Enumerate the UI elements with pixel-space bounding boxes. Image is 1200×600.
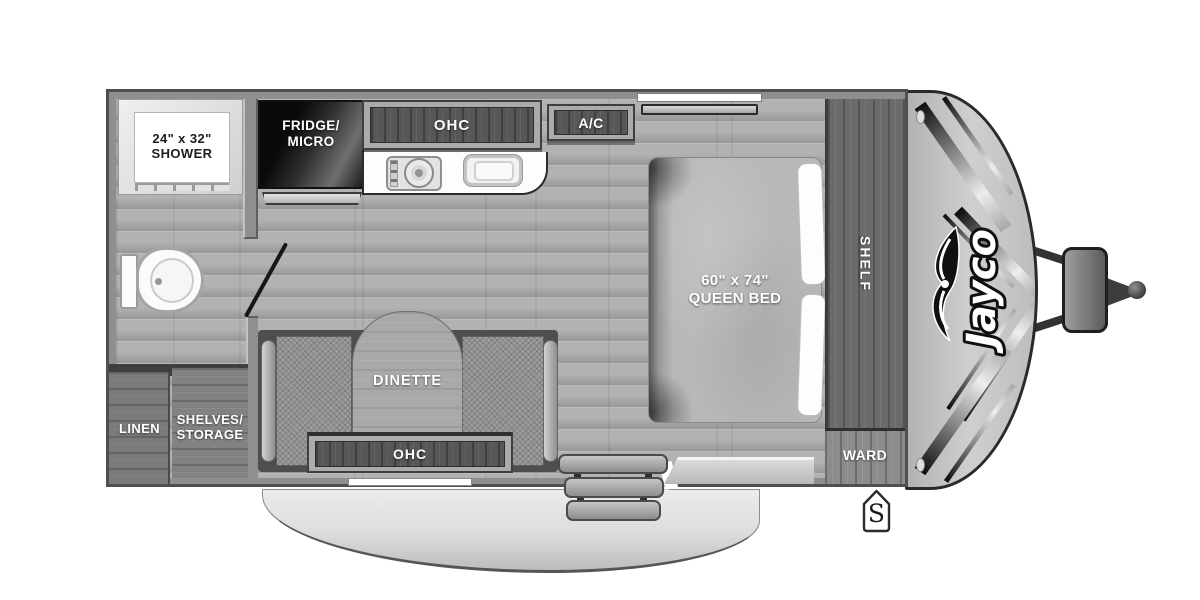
linen-label: LINEN xyxy=(109,421,170,436)
storage-platform xyxy=(664,457,814,484)
ac-label: A/C xyxy=(554,115,628,132)
kitchen-ohc-label: OHC xyxy=(370,117,534,135)
shelf-label: SHELF xyxy=(825,99,905,428)
pillow-bottom xyxy=(797,294,826,417)
bedroom-window-valance xyxy=(641,104,758,115)
dinette-armrest-left xyxy=(261,340,276,462)
jayco-logo: Jayco xyxy=(950,218,1010,358)
entry-step-2 xyxy=(564,477,664,498)
spec-badge-letter: S xyxy=(868,499,885,528)
toilet-flush-button xyxy=(155,278,162,285)
queen-bed-label: 60" x 74" QUEEN BED xyxy=(648,272,822,307)
fridge-line2: MICRO xyxy=(288,134,335,149)
fridge-vent-panel xyxy=(262,192,362,205)
cap-rivet-top xyxy=(916,110,925,124)
propane-tank xyxy=(1062,247,1108,333)
bedroom-window xyxy=(637,93,762,102)
stove-burner-center xyxy=(415,169,423,177)
spec-badge: S xyxy=(861,489,892,533)
kitchen-sink-basin xyxy=(474,161,514,181)
pillow-top xyxy=(797,163,826,286)
stove-controls xyxy=(390,160,398,187)
fridge-micro-label: FRIDGE/ MICRO xyxy=(258,118,364,150)
awning-shape xyxy=(262,489,760,573)
dinette-label: DINETTE xyxy=(352,373,463,390)
bathroom-wall-upper xyxy=(243,99,258,239)
bed-name: QUEEN BED xyxy=(689,290,782,307)
shower-door-track xyxy=(135,183,229,191)
shelves-line2: STORAGE xyxy=(177,427,244,442)
shower-name: SHOWER xyxy=(152,146,213,161)
shower-label: 24" x 32" SHOWER xyxy=(134,131,230,162)
hitch-ball xyxy=(1128,281,1146,299)
entry-step-1 xyxy=(558,454,668,474)
fridge-line1: FRIDGE/ xyxy=(282,118,340,133)
front-cap: Jayco xyxy=(905,90,1038,490)
floorplan-canvas: 10' AWNING Jayco 24" x 3 xyxy=(0,0,1200,600)
dinette-armrest-right xyxy=(543,340,558,462)
jayco-logo-text: Jayco xyxy=(959,229,1005,354)
wardrobe-label: WARD xyxy=(825,447,905,464)
shelves-line1: SHELVES/ xyxy=(177,412,244,427)
entry-step-3 xyxy=(566,500,661,521)
shelves-storage-label: SHELVES/ STORAGE xyxy=(170,412,250,443)
shower-size: 24" x 32" xyxy=(152,131,211,146)
bed-size: 60" x 74" xyxy=(701,272,769,289)
dinette-window xyxy=(348,478,472,486)
cap-rivet-bottom xyxy=(916,458,925,472)
dinette-ohc-label: OHC xyxy=(315,446,505,463)
